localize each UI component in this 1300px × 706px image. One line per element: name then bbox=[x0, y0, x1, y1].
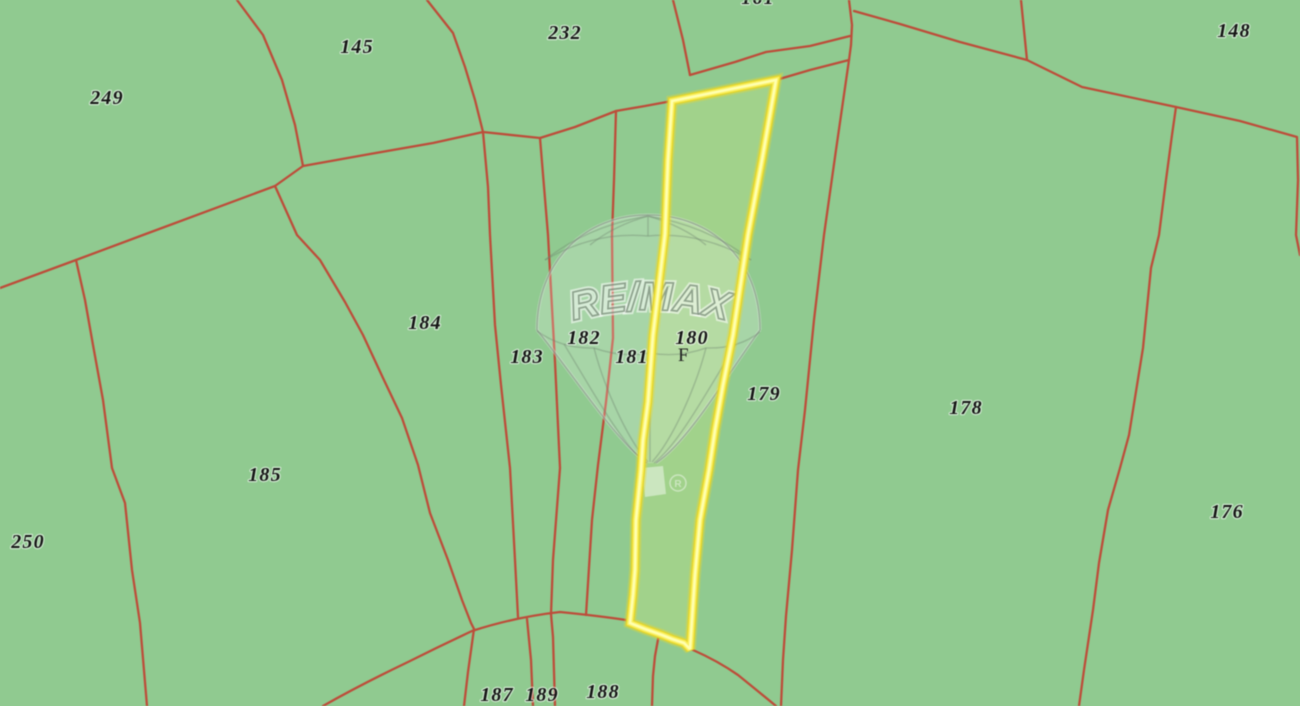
svg-text:181: 181 bbox=[615, 346, 649, 368]
svg-text:184: 184 bbox=[408, 312, 442, 334]
svg-text:148: 148 bbox=[1217, 20, 1251, 42]
svg-text:183: 183 bbox=[510, 346, 544, 368]
svg-text:187: 187 bbox=[480, 684, 514, 706]
svg-text:182: 182 bbox=[567, 327, 601, 349]
svg-text:249: 249 bbox=[89, 87, 124, 109]
svg-text:232: 232 bbox=[547, 22, 582, 44]
svg-text:178: 178 bbox=[949, 397, 983, 419]
svg-text:R: R bbox=[674, 479, 682, 490]
svg-text:189: 189 bbox=[525, 684, 559, 706]
svg-text:145: 145 bbox=[340, 36, 374, 58]
svg-text:188: 188 bbox=[586, 681, 620, 703]
svg-text:250: 250 bbox=[10, 531, 45, 553]
svg-text:176: 176 bbox=[1210, 501, 1244, 523]
svg-text:161: 161 bbox=[741, 0, 775, 9]
svg-text:179: 179 bbox=[747, 383, 781, 405]
svg-text:185: 185 bbox=[248, 464, 282, 486]
svg-text:F: F bbox=[678, 345, 689, 366]
